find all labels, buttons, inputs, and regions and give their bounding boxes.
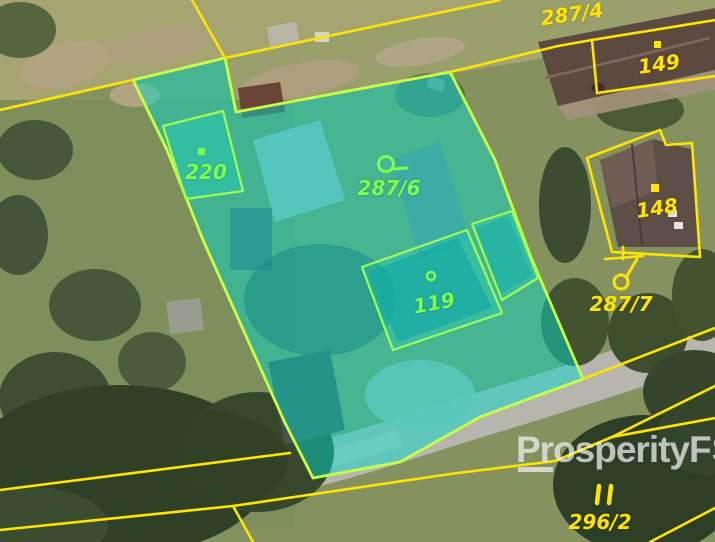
- parcel-149-square-dot: [654, 41, 661, 48]
- parcel-220-square-dot: [198, 148, 205, 155]
- parcel-148-square-dot: [651, 184, 659, 192]
- aerial-map-image: [0, 0, 715, 542]
- building-148: [600, 139, 698, 247]
- map-viewport[interactable]: 287/4 149 220 287/6 148 119 287/7 296/2 …: [0, 0, 715, 542]
- watermark-underline: [518, 467, 553, 472]
